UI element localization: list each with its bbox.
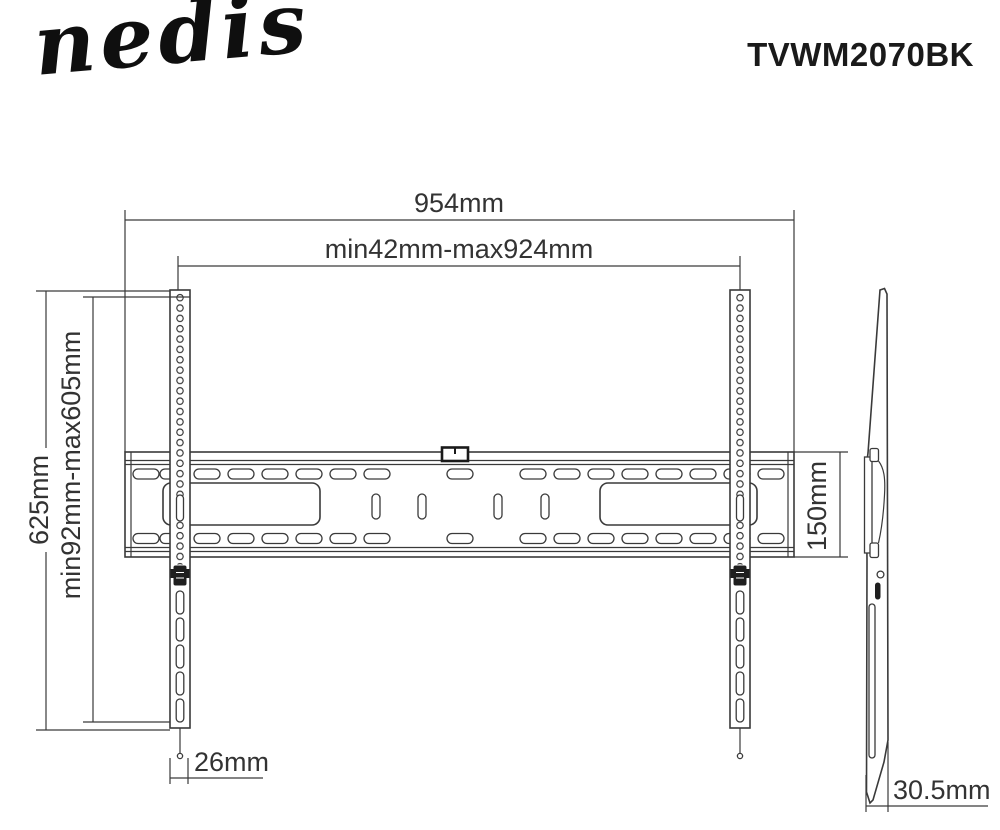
mount-slot: [588, 469, 614, 479]
side-long-slot: [869, 604, 875, 758]
label-total-height: 625mm: [24, 455, 54, 545]
mount-slot: [228, 534, 254, 544]
wall-plate: [125, 448, 794, 558]
mount-slot: [520, 534, 546, 544]
rail-slot: [736, 645, 744, 668]
rail-slot: [176, 672, 184, 695]
mount-slot: [133, 534, 159, 544]
mount-slot: [228, 469, 254, 479]
right-lock-knob: [731, 566, 749, 585]
rail-slot: [176, 699, 184, 722]
drawing-page: nedis TVWM2070BK: [0, 0, 1000, 830]
mount-slot: [447, 469, 473, 479]
center-slot: [418, 494, 426, 519]
center-slot: [541, 494, 549, 519]
rail-slot: [176, 618, 184, 641]
center-slot: [494, 494, 502, 519]
mount-slot: [622, 469, 648, 479]
right-rail-slot: [737, 495, 744, 521]
mount-slot: [758, 534, 784, 544]
technical-drawing: 954mm min42mm-max924mm 625mm: [0, 0, 1000, 830]
side-dark-slot: [876, 583, 881, 599]
mount-slot: [656, 469, 682, 479]
side-hole: [877, 571, 884, 578]
left-rail-slot: [177, 495, 184, 521]
mount-slot: [330, 534, 356, 544]
mount-slot: [690, 534, 716, 544]
mount-slot: [296, 469, 322, 479]
mount-slot: [554, 469, 580, 479]
mount-slot: [262, 469, 288, 479]
front-view: 954mm min42mm-max924mm 625mm: [24, 188, 848, 784]
dimension-total-width: 954mm: [125, 188, 794, 452]
mount-slot: [262, 534, 288, 544]
dimension-plate-height: 150mm: [794, 452, 848, 557]
right-pull-cord-ball: [737, 753, 742, 758]
left-pull-cord-ball: [177, 753, 182, 758]
mount-slot: [622, 534, 648, 544]
mount-slot: [194, 534, 220, 544]
mount-slot: [588, 534, 614, 544]
rail-slot: [736, 591, 744, 614]
left-rail: [170, 290, 190, 759]
label-height-range: min92mm-max605mm: [56, 331, 86, 600]
mount-slot: [133, 469, 159, 479]
mount-slot: [656, 534, 682, 544]
mount-slot: [296, 534, 322, 544]
mount-slot: [194, 469, 220, 479]
label-total-width: 954mm: [414, 188, 504, 218]
label-depth: 30.5mm: [893, 775, 991, 805]
center-slot: [372, 494, 380, 519]
right-rail: [730, 290, 750, 759]
dimension-rail-width: 26mm: [170, 747, 269, 784]
mount-slot: [330, 469, 356, 479]
rail-slot: [176, 591, 184, 614]
mount-slot: [447, 534, 473, 544]
side-view: 30.5mm: [865, 289, 991, 813]
mount-slot: [364, 469, 390, 479]
left-lock-knob: [171, 566, 189, 585]
mount-slot: [758, 469, 784, 479]
mount-slot: [690, 469, 716, 479]
label-plate-height: 150mm: [802, 461, 832, 551]
rail-slot: [736, 618, 744, 641]
rail-slot: [736, 672, 744, 695]
label-rail-width: 26mm: [194, 747, 269, 777]
mount-slot: [554, 534, 580, 544]
right-rail-holes: [730, 293, 750, 565]
left-rail-holes: [170, 293, 190, 565]
bubble-level: [442, 448, 468, 462]
mount-slot: [520, 469, 546, 479]
rail-slot: [736, 699, 744, 722]
dimension-width-range: min42mm-max924mm: [178, 234, 740, 290]
rail-slot: [176, 645, 184, 668]
label-width-range: min42mm-max924mm: [325, 234, 594, 264]
mount-slot: [364, 534, 390, 544]
